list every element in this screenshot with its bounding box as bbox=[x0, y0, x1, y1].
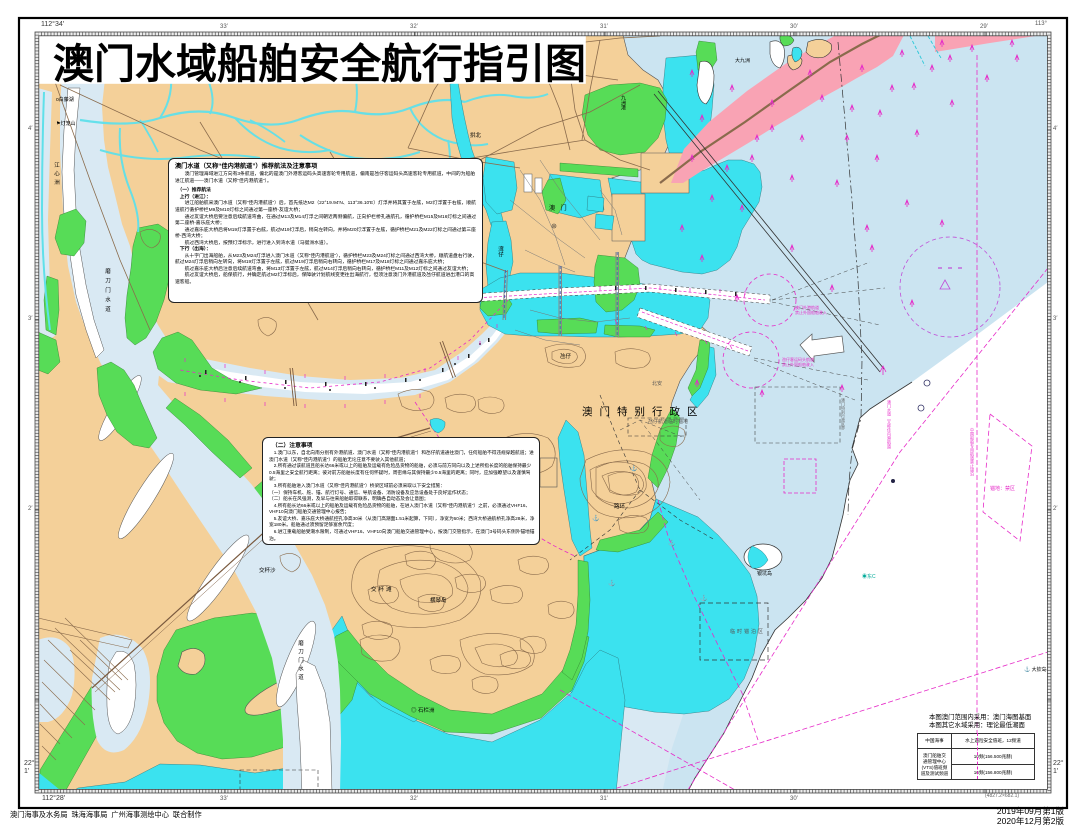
svg-text:⚓: ⚓ bbox=[592, 514, 599, 522]
svg-text:⚓: ⚓ bbox=[668, 539, 675, 547]
svg-text:⚓: ⚓ bbox=[700, 594, 707, 602]
svg-text:⚓: ⚓ bbox=[608, 579, 615, 587]
